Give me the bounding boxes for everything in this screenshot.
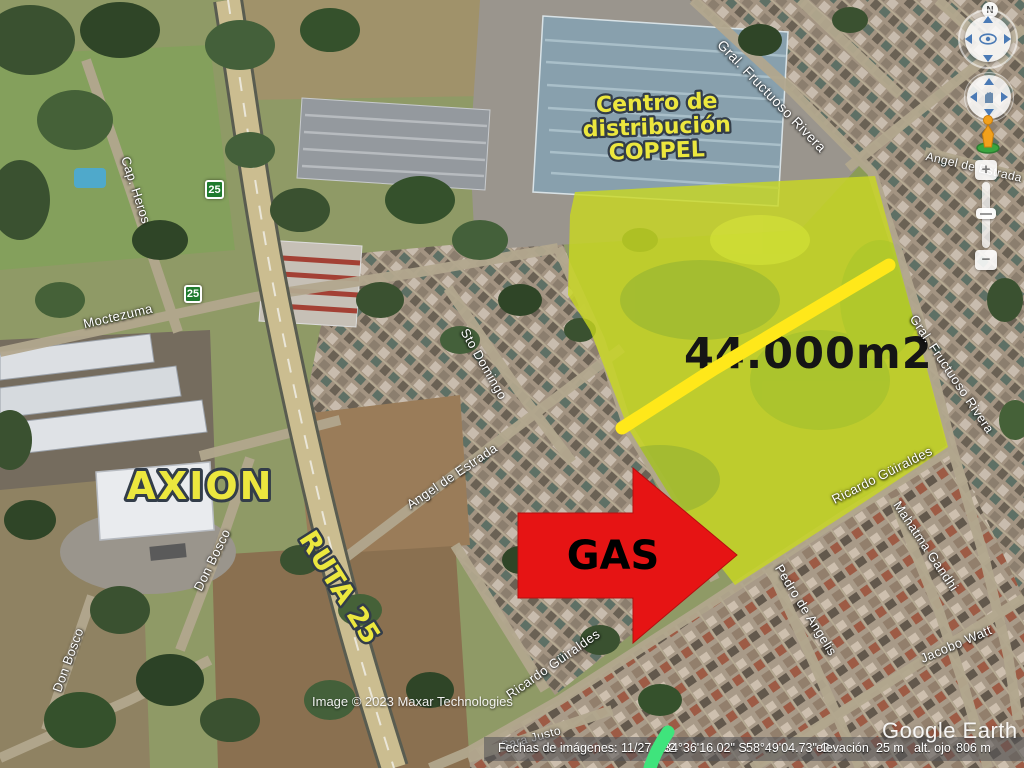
look-right-arrow[interactable]: [1004, 34, 1011, 44]
navigation-controls: N +: [953, 0, 1023, 285]
satellite-map[interactable]: 44.000m2 GAS Centro de distribución COPP…: [0, 0, 1024, 768]
imagery-dates-label: Fechas de imágenes: 11/27/202: [498, 741, 676, 755]
zoom-out-button[interactable]: −: [975, 250, 997, 270]
gas-label: GAS: [567, 533, 660, 579]
hand-icon: [981, 89, 997, 105]
google-earth-logo: Google Earth: [882, 718, 1018, 744]
axion-label: AXION: [127, 464, 274, 508]
move-right-arrow[interactable]: [1001, 92, 1008, 102]
eye-icon: [978, 33, 998, 45]
look-up-arrow[interactable]: [983, 16, 993, 23]
look-joystick[interactable]: [958, 9, 1018, 69]
zoom-handle[interactable]: [976, 208, 996, 219]
zoom-slider[interactable]: + −: [974, 158, 998, 272]
coppel-label-line3: COPPEL: [608, 137, 705, 165]
google-earth-window: 44.000m2 GAS Centro de distribución COPP…: [0, 0, 1024, 768]
imagery-credit: Image © 2023 Maxar Technologies: [312, 694, 513, 709]
move-up-arrow[interactable]: [984, 78, 994, 85]
latitude-value: 34°36'16.02" S: [664, 741, 747, 755]
look-left-arrow[interactable]: [965, 34, 972, 44]
zoom-in-button[interactable]: +: [975, 160, 997, 180]
look-down-arrow[interactable]: [983, 55, 993, 62]
elevation-label: elevación: [816, 741, 869, 755]
move-left-arrow[interactable]: [970, 92, 977, 102]
pegman-icon[interactable]: [974, 112, 1002, 154]
